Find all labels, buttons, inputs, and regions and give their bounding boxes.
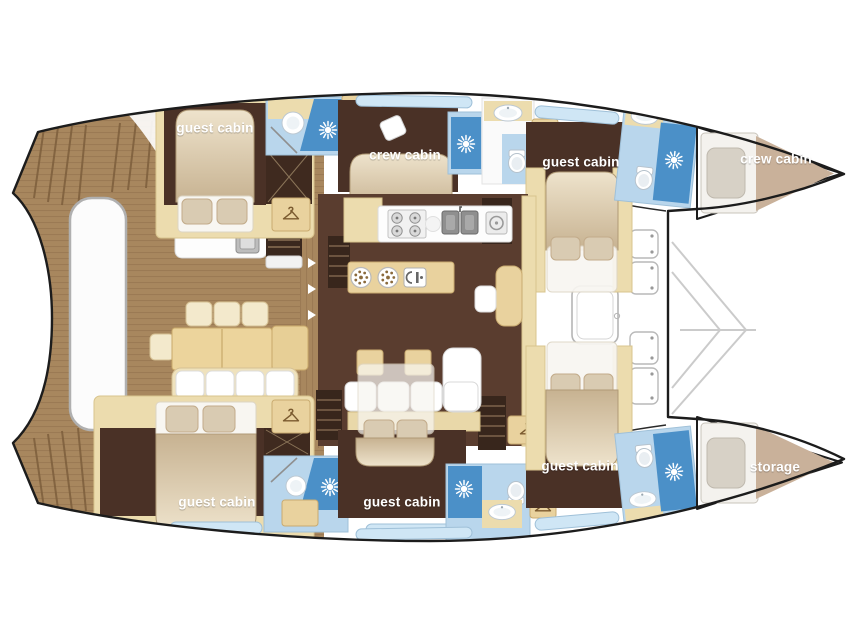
tender-platform <box>70 198 126 430</box>
room-label-guest-cabin-aft-stbd: guest cabin <box>178 495 255 510</box>
bathroom-aft-stbd <box>264 456 348 532</box>
forward-hatch <box>572 286 618 344</box>
double-bed <box>356 364 434 466</box>
cushion <box>475 286 496 312</box>
room-label-storage-bow: storage <box>750 460 800 475</box>
galley-island <box>348 262 454 293</box>
chair <box>186 302 212 326</box>
room-label-guest-cabin-fwd-port: guest cabin <box>542 155 619 170</box>
toilet-icon <box>509 150 526 173</box>
pillow <box>551 237 580 260</box>
room-label-guest-cabin-fwd-stbd: guest cabin <box>541 459 618 474</box>
pillow <box>166 406 198 432</box>
room-label-guest-cabin-aft-port: guest cabin <box>176 121 253 136</box>
catamaran-deck-plan: guest cabin crew cabin guest cabin crew … <box>0 0 850 637</box>
chair <box>242 302 268 326</box>
room-label-crew-cabin-bow: crew cabin <box>740 152 812 167</box>
chair <box>150 334 174 360</box>
pillow <box>707 438 745 488</box>
bathroom-crew <box>448 112 484 174</box>
pillow <box>584 237 613 260</box>
deck-plan-illustration <box>0 0 850 637</box>
appliance-icon <box>486 212 507 234</box>
settee <box>496 266 522 326</box>
bathroom-aft-port <box>266 97 348 155</box>
pillow <box>182 199 212 224</box>
cockpit-cabinet <box>272 326 308 370</box>
chair <box>214 302 240 326</box>
pillow <box>217 199 247 224</box>
wardrobe <box>272 400 310 433</box>
washbasin-icon <box>489 504 516 519</box>
double-bed <box>546 172 618 292</box>
double-bed <box>156 402 256 532</box>
pillow <box>203 406 235 432</box>
room-label-crew-cabin-main: crew cabin <box>369 148 441 163</box>
crew-cabin-bow <box>697 127 842 219</box>
hob-icon <box>351 268 371 288</box>
hob-icon <box>378 268 398 288</box>
room-label-guest-cabin-mid-stbd: guest cabin <box>363 495 440 510</box>
wardrobe <box>272 198 310 231</box>
washbasin-icon <box>494 105 522 121</box>
stove-icon <box>388 210 426 238</box>
double-bed <box>546 342 618 466</box>
cooler-icon <box>404 268 426 287</box>
trampoline-net <box>672 242 756 414</box>
